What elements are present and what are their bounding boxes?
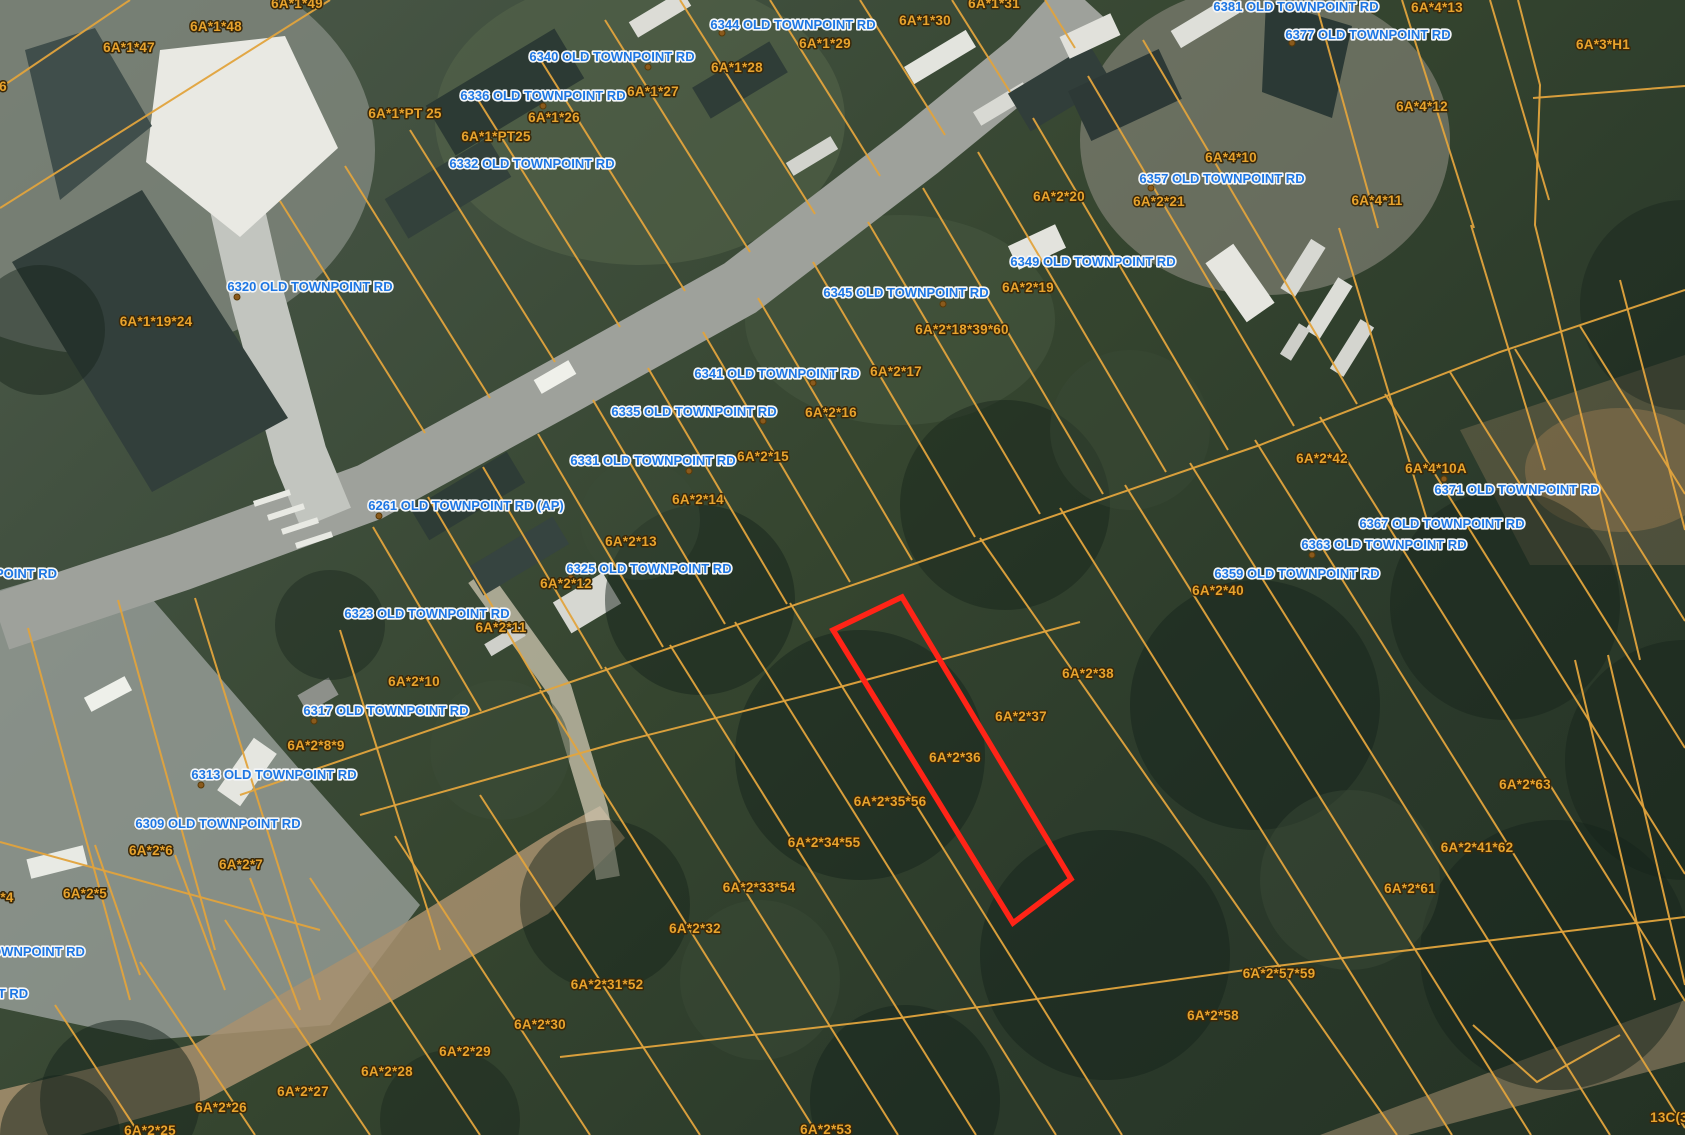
parcel-id-label: 6A*4*12 xyxy=(1396,99,1448,114)
parcel-id-label: 6A*1*47 xyxy=(103,40,155,55)
parcel-id-label: 6A*1*28 xyxy=(711,60,763,75)
parcel-id-label: 6A*2*37 xyxy=(995,709,1047,724)
address-point-dot xyxy=(376,513,382,519)
parcel-id-label: 6A*2*16 xyxy=(805,405,857,420)
address-label: OWNPOINT RD xyxy=(0,944,85,959)
parcel-boundary-line xyxy=(428,497,541,689)
address-label: 6332 OLD TOWNPOINT RD xyxy=(449,156,614,171)
address-point-dot xyxy=(311,718,317,724)
parcel-id-label: 6A*2*12 xyxy=(540,576,592,591)
address-label: 6377 OLD TOWNPOINT RD xyxy=(1285,27,1450,42)
tree-canopy xyxy=(520,820,690,990)
parcel-id-label: 6A*2*35*56 xyxy=(854,794,927,809)
address-label: 6261 OLD TOWNPOINT RD (AP) xyxy=(368,498,564,513)
parcel-id-label: 6A*4*13 xyxy=(1411,0,1463,15)
parcel-id-label: 6A*2*8*9 xyxy=(287,738,344,753)
parcel-id-label: 6A*2*58 xyxy=(1187,1008,1239,1023)
parcel-id-label: 6 xyxy=(0,79,7,94)
parcel-id-label: 6A*2*20 xyxy=(1033,189,1085,204)
parcel-id-label: 6A*2*53 xyxy=(800,1122,852,1135)
address-label: 6335 OLD TOWNPOINT RD xyxy=(611,404,776,419)
parcel-id-label: 6A*1*31 xyxy=(968,0,1020,11)
parcel-id-label: 6A*2*27 xyxy=(277,1084,329,1099)
parcel-id-label: 6A*2*28 xyxy=(361,1064,413,1079)
parcel-id-label: 6A*3*H1 xyxy=(1576,37,1630,52)
address-label: 6344 OLD TOWNPOINT RD xyxy=(710,17,875,32)
parcel-id-label: 6A*2*32 xyxy=(669,921,721,936)
address-label: 6309 OLD TOWNPOINT RD xyxy=(135,816,300,831)
address-point-dot xyxy=(940,301,946,307)
parcel-id-label: 6A*2*29 xyxy=(439,1044,491,1059)
address-label: 6336 OLD TOWNPOINT RD xyxy=(460,88,625,103)
aerial-parcel-map[interactable]: 6A*1*476A*1*486A*1*496A*1*PT 256A*1*PT25… xyxy=(0,0,1685,1135)
address-label: 6313 OLD TOWNPOINT RD xyxy=(191,767,356,782)
address-label: 6381 OLD TOWNPOINT RD xyxy=(1213,0,1378,14)
parcel-id-label: 6A*2*21 xyxy=(1133,194,1185,209)
parcel-id-label: 6A*2*30 xyxy=(514,1017,566,1032)
brush-patch xyxy=(430,680,570,820)
address-label: 6323 OLD TOWNPOINT RD xyxy=(344,606,509,621)
tree-canopy xyxy=(1580,200,1685,410)
parcel-id-label: 6A*2*40 xyxy=(1192,583,1244,598)
parcel-id-label: 6A*4*10A xyxy=(1405,461,1467,476)
parcel-id-label: 6A*2*38 xyxy=(1062,666,1114,681)
parcel-id-label: 6A*2*25 xyxy=(124,1123,176,1135)
address-label: 6331 OLD TOWNPOINT RD xyxy=(570,453,735,468)
parcel-id-label: 6A*2*36 xyxy=(929,750,981,765)
address-label: 6371 OLD TOWNPOINT RD xyxy=(1434,482,1599,497)
address-point-dot xyxy=(686,468,692,474)
parcel-id-label: 6A*2*14 xyxy=(672,492,724,507)
address-label: 6317 OLD TOWNPOINT RD xyxy=(303,703,468,718)
address-point-dot xyxy=(540,103,546,109)
tree-canopy xyxy=(980,830,1230,1080)
parcel-id-label: 6A*2*26 xyxy=(195,1100,247,1115)
address-label: 6320 OLD TOWNPOINT RD xyxy=(227,279,392,294)
parcel-boundary-line xyxy=(1533,86,1685,98)
parcel-id-label: 6A*2*10 xyxy=(388,674,440,689)
parcel-id-label: 6A*4*11 xyxy=(1352,193,1403,208)
address-label: 6340 OLD TOWNPOINT RD xyxy=(529,49,694,64)
address-point-dot xyxy=(1309,552,1315,558)
parcel-id-label: 6A*1*30 xyxy=(899,13,951,28)
address-point-dot xyxy=(198,782,204,788)
parcel-id-label: 6A*2*19 xyxy=(1002,280,1054,295)
address-label: T RD xyxy=(0,986,28,1001)
parcel-id-label: 6A*1*48 xyxy=(190,19,242,34)
brush-patch xyxy=(1260,790,1440,970)
address-label: 6359 OLD TOWNPOINT RD xyxy=(1214,566,1379,581)
address-label: 6325 OLD TOWNPOINT RD xyxy=(566,561,731,576)
parcel-id-label: 6A*2*31*52 xyxy=(571,977,644,992)
tree-canopy xyxy=(275,570,385,680)
parcel-id-label: 6A*1*29 xyxy=(799,36,851,51)
address-label: 6357 OLD TOWNPOINT RD xyxy=(1139,171,1304,186)
parcel-id-label: 6A*2*18*39*60 xyxy=(915,322,1008,337)
parcel-id-label: 6A*2*13 xyxy=(605,534,657,549)
parcel-id-label: 6A*1*PT25 xyxy=(461,129,531,144)
parcel-id-label: *4 xyxy=(0,890,13,905)
parcel-id-label: 6A*2*34*55 xyxy=(788,835,861,850)
parcel-id-label: 6A*2*7 xyxy=(219,857,263,872)
address-label: 6367 OLD TOWNPOINT RD xyxy=(1359,516,1524,531)
parcel-id-label: 6A*2*5 xyxy=(63,886,107,901)
parcel-id-label: 6A*1*49 xyxy=(271,0,323,11)
address-label: POINT RD xyxy=(0,566,57,581)
address-label: 6349 OLD TOWNPOINT RD xyxy=(1010,254,1175,269)
brush-patch xyxy=(1050,350,1210,510)
parcel-id-label: 6A*2*57*59 xyxy=(1243,966,1316,981)
parcel-id-label: 6A*2*17 xyxy=(870,364,922,379)
parcel-id-label: 6A*1*27 xyxy=(627,84,679,99)
gis-map-viewport[interactable]: 6A*1*476A*1*486A*1*496A*1*PT 256A*1*PT25… xyxy=(0,0,1685,1135)
parcel-id-label: 6A*2*33*54 xyxy=(723,880,796,895)
address-point-dot xyxy=(234,294,240,300)
parcel-id-label: 6A*2*61 xyxy=(1384,881,1436,896)
parcel-id-label: 6A*2*42 xyxy=(1296,451,1348,466)
parcel-id-label: 6A*2*15 xyxy=(737,449,789,464)
address-label: 6345 OLD TOWNPOINT RD xyxy=(823,285,988,300)
parcel-id-label: 6A*4*10 xyxy=(1205,150,1257,165)
address-label: 6341 OLD TOWNPOINT RD xyxy=(694,366,859,381)
address-label: 6363 OLD TOWNPOINT RD xyxy=(1301,537,1466,552)
parcel-id-label: 6A*1*19*24 xyxy=(120,314,193,329)
parcel-id-label: 6A*1*PT 25 xyxy=(368,106,442,121)
building-roof xyxy=(1280,323,1310,360)
parcel-id-label: 13C(3 xyxy=(1650,1110,1685,1125)
parcel-id-label: 6A*2*6 xyxy=(129,843,173,858)
tree-canopy xyxy=(380,1050,520,1135)
parcel-id-label: 6A*2*11 xyxy=(476,620,527,635)
parcel-boundary-line xyxy=(1518,0,1553,298)
parcel-id-label: 6A*2*41*62 xyxy=(1441,840,1514,855)
parcel-boundary-line xyxy=(1339,228,1427,520)
parcel-id-label: 6A*1*26 xyxy=(528,110,580,125)
parcel-id-label: 6A*2*63 xyxy=(1499,777,1551,792)
address-point-dot xyxy=(645,64,651,70)
